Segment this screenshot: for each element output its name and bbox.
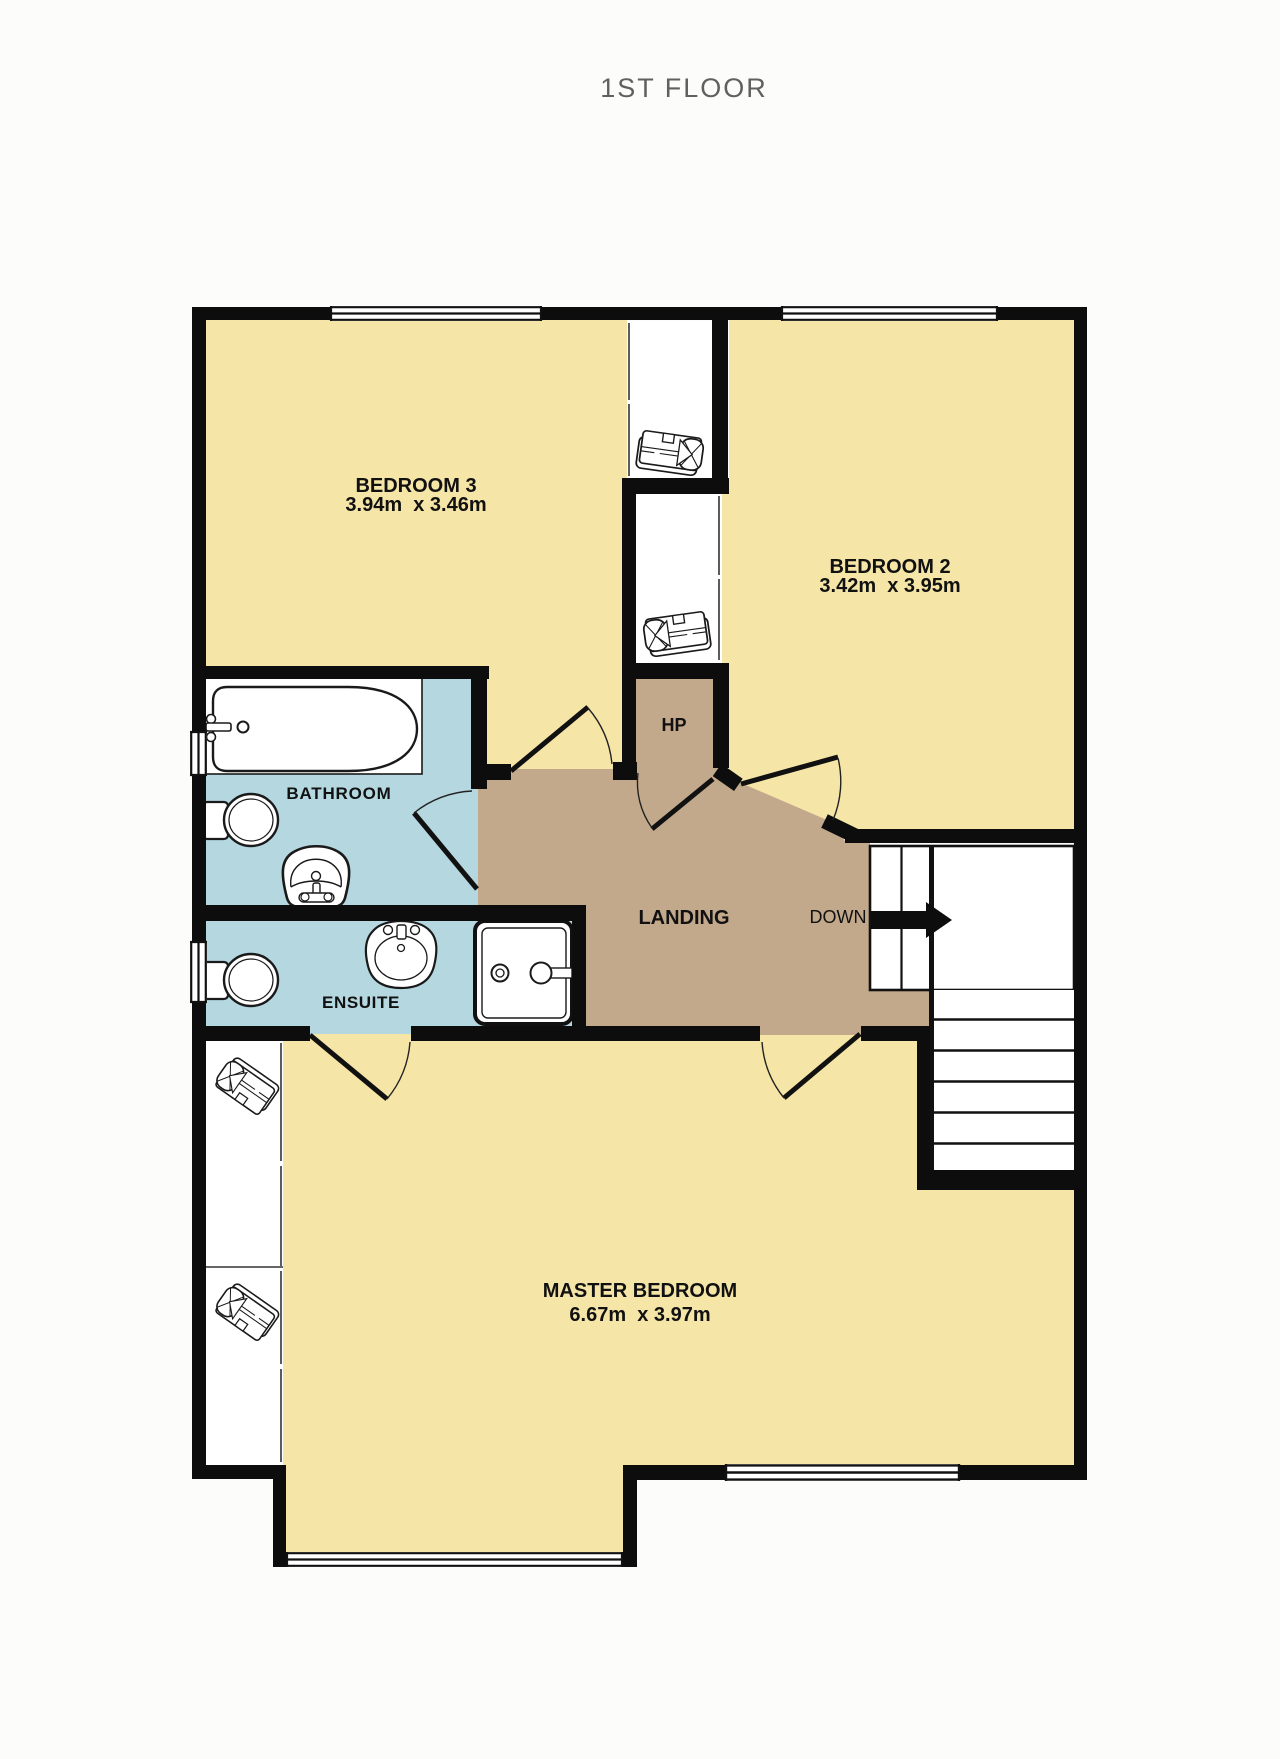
svg-text:3.94m x 3.46m: 3.94m x 3.46m (345, 494, 486, 516)
svg-text:6.67m x 3.97m: 6.67m x 3.97m (569, 1304, 710, 1326)
svg-text:LANDING: LANDING (638, 907, 729, 929)
svg-text:BATHROOM: BATHROOM (286, 784, 391, 803)
svg-text:DOWN: DOWN (810, 907, 867, 927)
svg-text:1ST FLOOR: 1ST FLOOR (600, 73, 768, 103)
svg-text:MASTER BEDROOM: MASTER BEDROOM (543, 1280, 737, 1302)
svg-text:ENSUITE: ENSUITE (322, 993, 400, 1012)
svg-text:HP: HP (661, 715, 686, 735)
svg-text:3.42m x 3.95m: 3.42m x 3.95m (819, 575, 960, 597)
